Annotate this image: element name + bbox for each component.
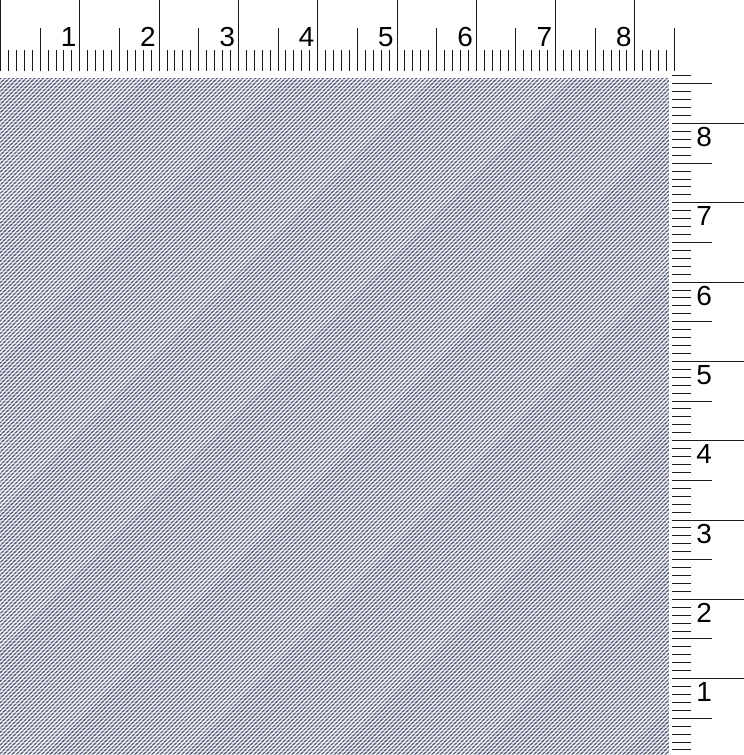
h-ruler-tick-minor (404, 50, 405, 71)
v-ruler-tick-minor (672, 623, 691, 624)
h-ruler-tick-minor (389, 50, 390, 71)
h-ruler-tick-major (317, 0, 318, 71)
h-ruler-number: 1 (36, 23, 76, 51)
v-ruler-number: 6 (693, 282, 715, 310)
h-ruler-tick-minor (206, 50, 207, 71)
v-ruler-tick-half (672, 480, 712, 481)
v-ruler-tick-minor (672, 210, 691, 211)
h-ruler-tick-major (476, 0, 477, 71)
h-ruler-tick-minor (333, 50, 334, 71)
v-ruler-tick-major (672, 202, 744, 203)
h-ruler-tick-minor (492, 50, 493, 71)
v-ruler-number: 4 (693, 440, 715, 468)
h-ruler-tick-minor (563, 50, 564, 71)
h-ruler-tick-minor (468, 50, 469, 71)
h-ruler-tick-major (159, 0, 160, 71)
h-ruler-tick-minor (285, 50, 286, 71)
h-ruler-tick-minor (230, 50, 231, 71)
v-ruler-tick-minor (672, 416, 691, 417)
v-ruler-tick-minor (672, 186, 691, 187)
v-ruler-tick-minor (672, 337, 691, 338)
h-ruler-tick-minor (111, 50, 112, 71)
v-ruler-tick-half (672, 163, 712, 164)
v-ruler-tick-half (672, 559, 712, 560)
v-ruler-tick-minor (672, 432, 691, 433)
h-ruler-tick-half (674, 28, 675, 71)
h-ruler-tick-minor (174, 50, 175, 71)
v-ruler-tick-minor (672, 670, 691, 671)
h-ruler-tick-minor (412, 50, 413, 71)
fabric-texture-canvas[interactable] (0, 78, 669, 755)
v-ruler-tick-minor (672, 218, 691, 219)
h-ruler-tick-major (79, 0, 80, 71)
v-ruler-tick-minor (672, 583, 691, 584)
h-ruler-number: 3 (195, 23, 235, 51)
h-ruler-tick-minor (16, 50, 17, 71)
h-ruler-tick-minor (246, 50, 247, 71)
v-ruler-tick-minor (672, 385, 691, 386)
v-ruler-tick-minor (672, 654, 691, 655)
v-ruler-tick-minor (672, 424, 691, 425)
v-ruler-tick-half (672, 321, 712, 322)
v-ruler-tick-minor (672, 353, 691, 354)
v-ruler-tick-minor (672, 512, 691, 513)
h-ruler-tick-minor (547, 50, 548, 71)
v-ruler-tick-minor (672, 329, 691, 330)
h-ruler-tick-half (40, 28, 41, 71)
v-ruler-tick-minor (672, 226, 691, 227)
v-ruler-tick-minor (672, 734, 691, 735)
h-ruler-tick-minor (222, 50, 223, 71)
v-ruler-tick-minor (672, 194, 691, 195)
h-ruler-tick-half (515, 28, 516, 71)
v-ruler-tick-minor (672, 575, 691, 576)
v-ruler-tick-minor (672, 591, 691, 592)
h-ruler-tick-major (0, 0, 1, 71)
v-ruler-tick-minor (672, 551, 691, 552)
v-ruler-tick-minor (672, 742, 691, 743)
h-ruler-tick-minor (103, 50, 104, 71)
h-ruler-tick-minor (626, 50, 627, 71)
h-ruler-number: 4 (274, 23, 314, 51)
h-ruler-tick-major (555, 0, 556, 71)
v-ruler-tick-minor (672, 155, 691, 156)
v-ruler-tick-minor (672, 631, 691, 632)
h-ruler-tick-minor (341, 50, 342, 71)
v-ruler-tick-minor (672, 543, 691, 544)
h-ruler-tick-major (397, 0, 398, 71)
v-ruler-tick-major (672, 282, 744, 283)
v-ruler-tick-minor (672, 710, 691, 711)
h-ruler-number: 6 (433, 23, 473, 51)
h-ruler-tick-half (357, 28, 358, 71)
v-ruler-tick-minor (672, 345, 691, 346)
scan-preview-window: 12345678 87654321 (0, 0, 744, 755)
v-ruler-tick-minor (672, 726, 691, 727)
h-ruler-tick-minor (127, 50, 128, 71)
v-ruler-tick-minor (672, 464, 691, 465)
v-ruler-tick-minor (672, 274, 691, 275)
h-ruler-tick-minor (190, 50, 191, 71)
h-ruler-tick-minor (56, 50, 57, 71)
v-ruler-tick-half (672, 718, 712, 719)
v-ruler-number: 3 (693, 520, 715, 548)
v-ruler-tick-minor (672, 377, 691, 378)
v-ruler-tick-half (672, 401, 712, 402)
h-ruler-number: 2 (116, 23, 156, 51)
v-ruler-tick-minor (672, 607, 691, 608)
h-ruler-tick-minor (87, 50, 88, 71)
h-ruler-tick-minor (301, 50, 302, 71)
h-ruler-tick-minor (48, 50, 49, 71)
v-ruler-tick-minor (672, 662, 691, 663)
v-ruler-tick-half (672, 83, 712, 84)
h-ruler-tick-minor (182, 50, 183, 71)
v-ruler-tick-minor (672, 488, 691, 489)
h-ruler-tick-minor (587, 50, 588, 71)
v-ruler-tick-minor (672, 297, 691, 298)
h-ruler-tick-minor (71, 50, 72, 71)
v-ruler-tick-minor (672, 131, 691, 132)
h-ruler-tick-half (278, 28, 279, 71)
h-ruler-tick-minor (349, 50, 350, 71)
v-ruler-tick-minor (672, 496, 691, 497)
h-ruler-tick-minor (658, 50, 659, 71)
h-ruler-number: 8 (591, 23, 631, 51)
h-ruler-tick-minor (523, 50, 524, 71)
h-ruler-tick-half (198, 28, 199, 71)
h-ruler-tick-minor (262, 50, 263, 71)
v-ruler-tick-minor (672, 472, 691, 473)
v-ruler-tick-major (672, 599, 744, 600)
h-ruler-tick-minor (508, 50, 509, 71)
h-ruler-tick-minor (325, 50, 326, 71)
v-ruler-tick-minor (672, 91, 691, 92)
h-ruler-tick-minor (484, 50, 485, 71)
h-ruler-tick-minor (8, 50, 9, 71)
v-ruler-tick-minor (672, 290, 691, 291)
v-ruler-tick-minor (672, 615, 691, 616)
v-ruler-tick-minor (672, 448, 691, 449)
h-ruler-tick-half (595, 28, 596, 71)
v-ruler-tick-minor (672, 393, 691, 394)
h-ruler-tick-major (238, 0, 239, 71)
h-ruler-tick-minor (666, 50, 667, 71)
h-ruler-tick-half (119, 28, 120, 71)
h-ruler-tick-minor (452, 50, 453, 71)
h-ruler-tick-minor (460, 50, 461, 71)
h-ruler-tick-minor (444, 50, 445, 71)
h-ruler-number: 5 (354, 23, 394, 51)
h-ruler-tick-minor (270, 50, 271, 71)
h-ruler-tick-minor (420, 50, 421, 71)
v-ruler-tick-minor (672, 171, 691, 172)
h-ruler-tick-major (634, 0, 635, 71)
v-ruler-tick-minor (672, 313, 691, 314)
v-ruler-tick-major (672, 678, 744, 679)
v-ruler-tick-minor (672, 115, 691, 116)
v-ruler-tick-minor (672, 686, 691, 687)
h-ruler-tick-minor (135, 50, 136, 71)
h-ruler-tick-half (436, 28, 437, 71)
v-ruler-number: 7 (693, 202, 715, 230)
v-ruler-tick-minor (672, 234, 691, 235)
v-ruler-tick-minor (672, 305, 691, 306)
v-ruler-tick-minor (672, 456, 691, 457)
v-ruler-tick-minor (672, 147, 691, 148)
v-ruler-tick-minor (672, 99, 691, 100)
v-ruler-tick-minor (672, 107, 691, 108)
v-ruler-tick-minor (672, 749, 691, 750)
v-ruler-number: 2 (693, 599, 715, 627)
v-ruler-tick-minor (672, 139, 691, 140)
v-ruler-tick-minor (672, 504, 691, 505)
v-ruler-tick-minor (672, 567, 691, 568)
h-ruler-tick-minor (500, 50, 501, 71)
h-ruler-tick-minor (143, 50, 144, 71)
v-ruler-tick-minor (672, 369, 691, 370)
v-ruler-tick-minor (672, 646, 691, 647)
h-ruler-tick-minor (309, 50, 310, 71)
v-ruler-tick-minor (672, 179, 691, 180)
h-ruler-tick-minor (373, 50, 374, 71)
h-ruler-tick-minor (428, 50, 429, 71)
h-ruler-tick-minor (381, 50, 382, 71)
h-ruler-tick-minor (167, 50, 168, 71)
v-ruler-tick-minor (672, 408, 691, 409)
h-ruler-tick-minor (151, 50, 152, 71)
h-ruler-tick-minor (365, 50, 366, 71)
v-ruler-number: 8 (693, 123, 715, 151)
v-ruler-number: 1 (693, 678, 715, 706)
v-ruler-tick-half (672, 242, 712, 243)
h-ruler-tick-minor (603, 50, 604, 71)
h-ruler-tick-minor (642, 50, 643, 71)
v-ruler-tick-minor (672, 75, 691, 76)
v-ruler-tick-minor (672, 694, 691, 695)
h-ruler-tick-minor (571, 50, 572, 71)
v-ruler-tick-minor (672, 702, 691, 703)
h-ruler-tick-minor (95, 50, 96, 71)
v-ruler-tick-minor (672, 527, 691, 528)
h-ruler-tick-minor (531, 50, 532, 71)
h-ruler-tick-minor (24, 50, 25, 71)
h-ruler-tick-minor (650, 50, 651, 71)
v-ruler-tick-minor (672, 250, 691, 251)
h-ruler-tick-minor (619, 50, 620, 71)
v-ruler-tick-major (672, 361, 744, 362)
v-ruler-tick-half (672, 638, 712, 639)
h-ruler-tick-minor (63, 50, 64, 71)
h-ruler-tick-minor (32, 50, 33, 71)
h-ruler-tick-minor (214, 50, 215, 71)
h-ruler-tick-minor (611, 50, 612, 71)
v-ruler-tick-major (672, 520, 744, 521)
v-ruler-tick-major (672, 440, 744, 441)
h-ruler-tick-minor (293, 50, 294, 71)
v-ruler-tick-minor (672, 266, 691, 267)
h-ruler-tick-minor (539, 50, 540, 71)
h-ruler-tick-minor (579, 50, 580, 71)
v-ruler-tick-minor (672, 258, 691, 259)
h-ruler-tick-minor (254, 50, 255, 71)
v-ruler-tick-major (672, 123, 744, 124)
v-ruler-tick-minor (672, 535, 691, 536)
v-ruler-number: 5 (693, 361, 715, 389)
h-ruler-number: 7 (512, 23, 552, 51)
